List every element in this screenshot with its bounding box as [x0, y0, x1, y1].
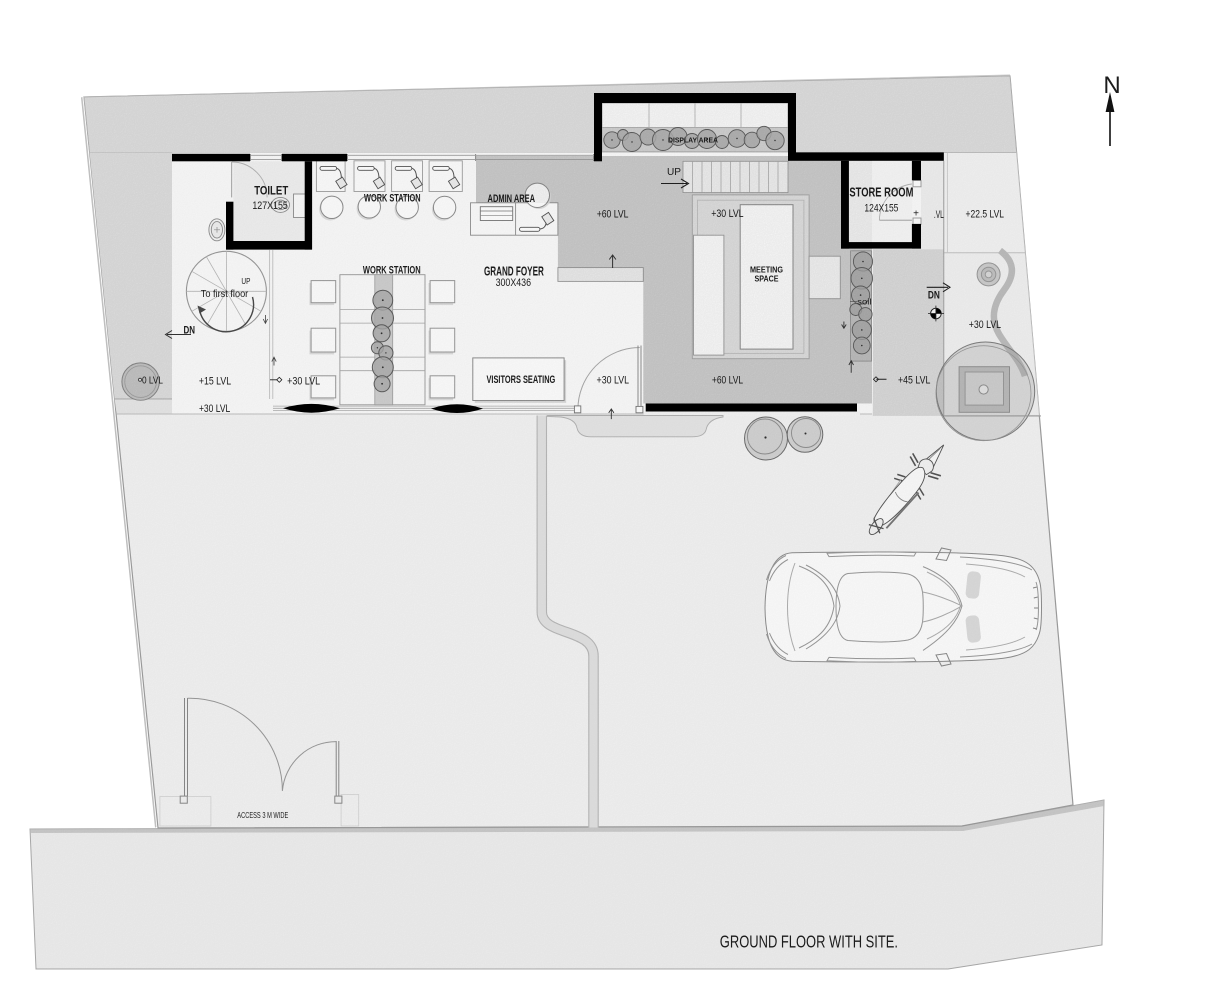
svg-text:N: N: [1103, 72, 1120, 99]
